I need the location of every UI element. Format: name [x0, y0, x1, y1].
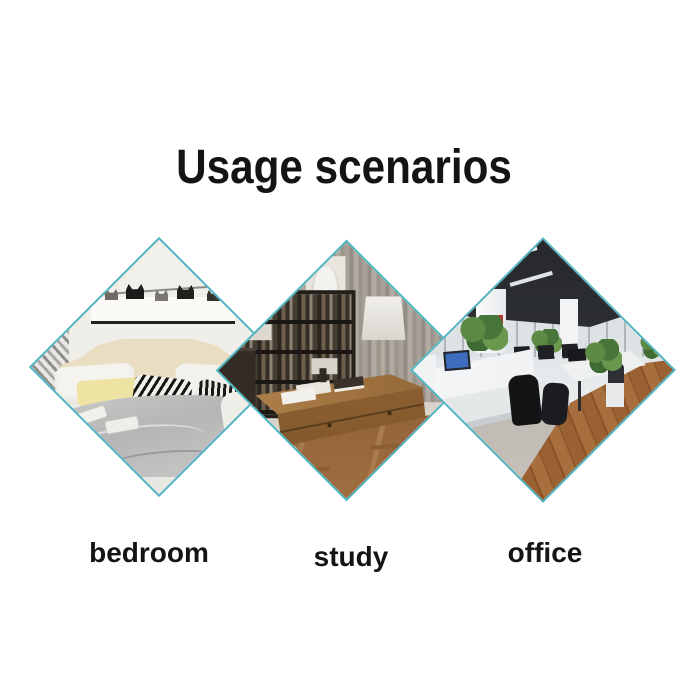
office-plant [584, 339, 622, 373]
usage-scenarios-banner: Usage scenarios [0, 0, 700, 700]
desk-legs [578, 381, 581, 411]
white-books [250, 324, 272, 340]
office-chair [540, 382, 570, 426]
office-chair [507, 374, 542, 427]
cat-silhouette-icon [207, 290, 220, 301]
page-title: Usage scenarios [36, 140, 652, 195]
cat-artwork-shelf [91, 297, 235, 324]
drawer-knob [388, 411, 392, 415]
ceiling-lights [440, 247, 483, 263]
office-label: office [508, 537, 583, 569]
office-plant [640, 331, 668, 359]
bedroom-label: bedroom [89, 537, 209, 569]
floor-lamp [362, 296, 406, 340]
laptop-screen [443, 350, 471, 371]
plant-pot [606, 383, 624, 407]
office-plant [458, 315, 508, 351]
white-column [560, 299, 578, 349]
office-diamond [410, 237, 676, 503]
study-label: study [314, 541, 389, 573]
desk-cup [320, 368, 327, 382]
drawer-knob [328, 423, 332, 427]
bed-foot [29, 477, 289, 497]
office-photo [410, 237, 676, 503]
